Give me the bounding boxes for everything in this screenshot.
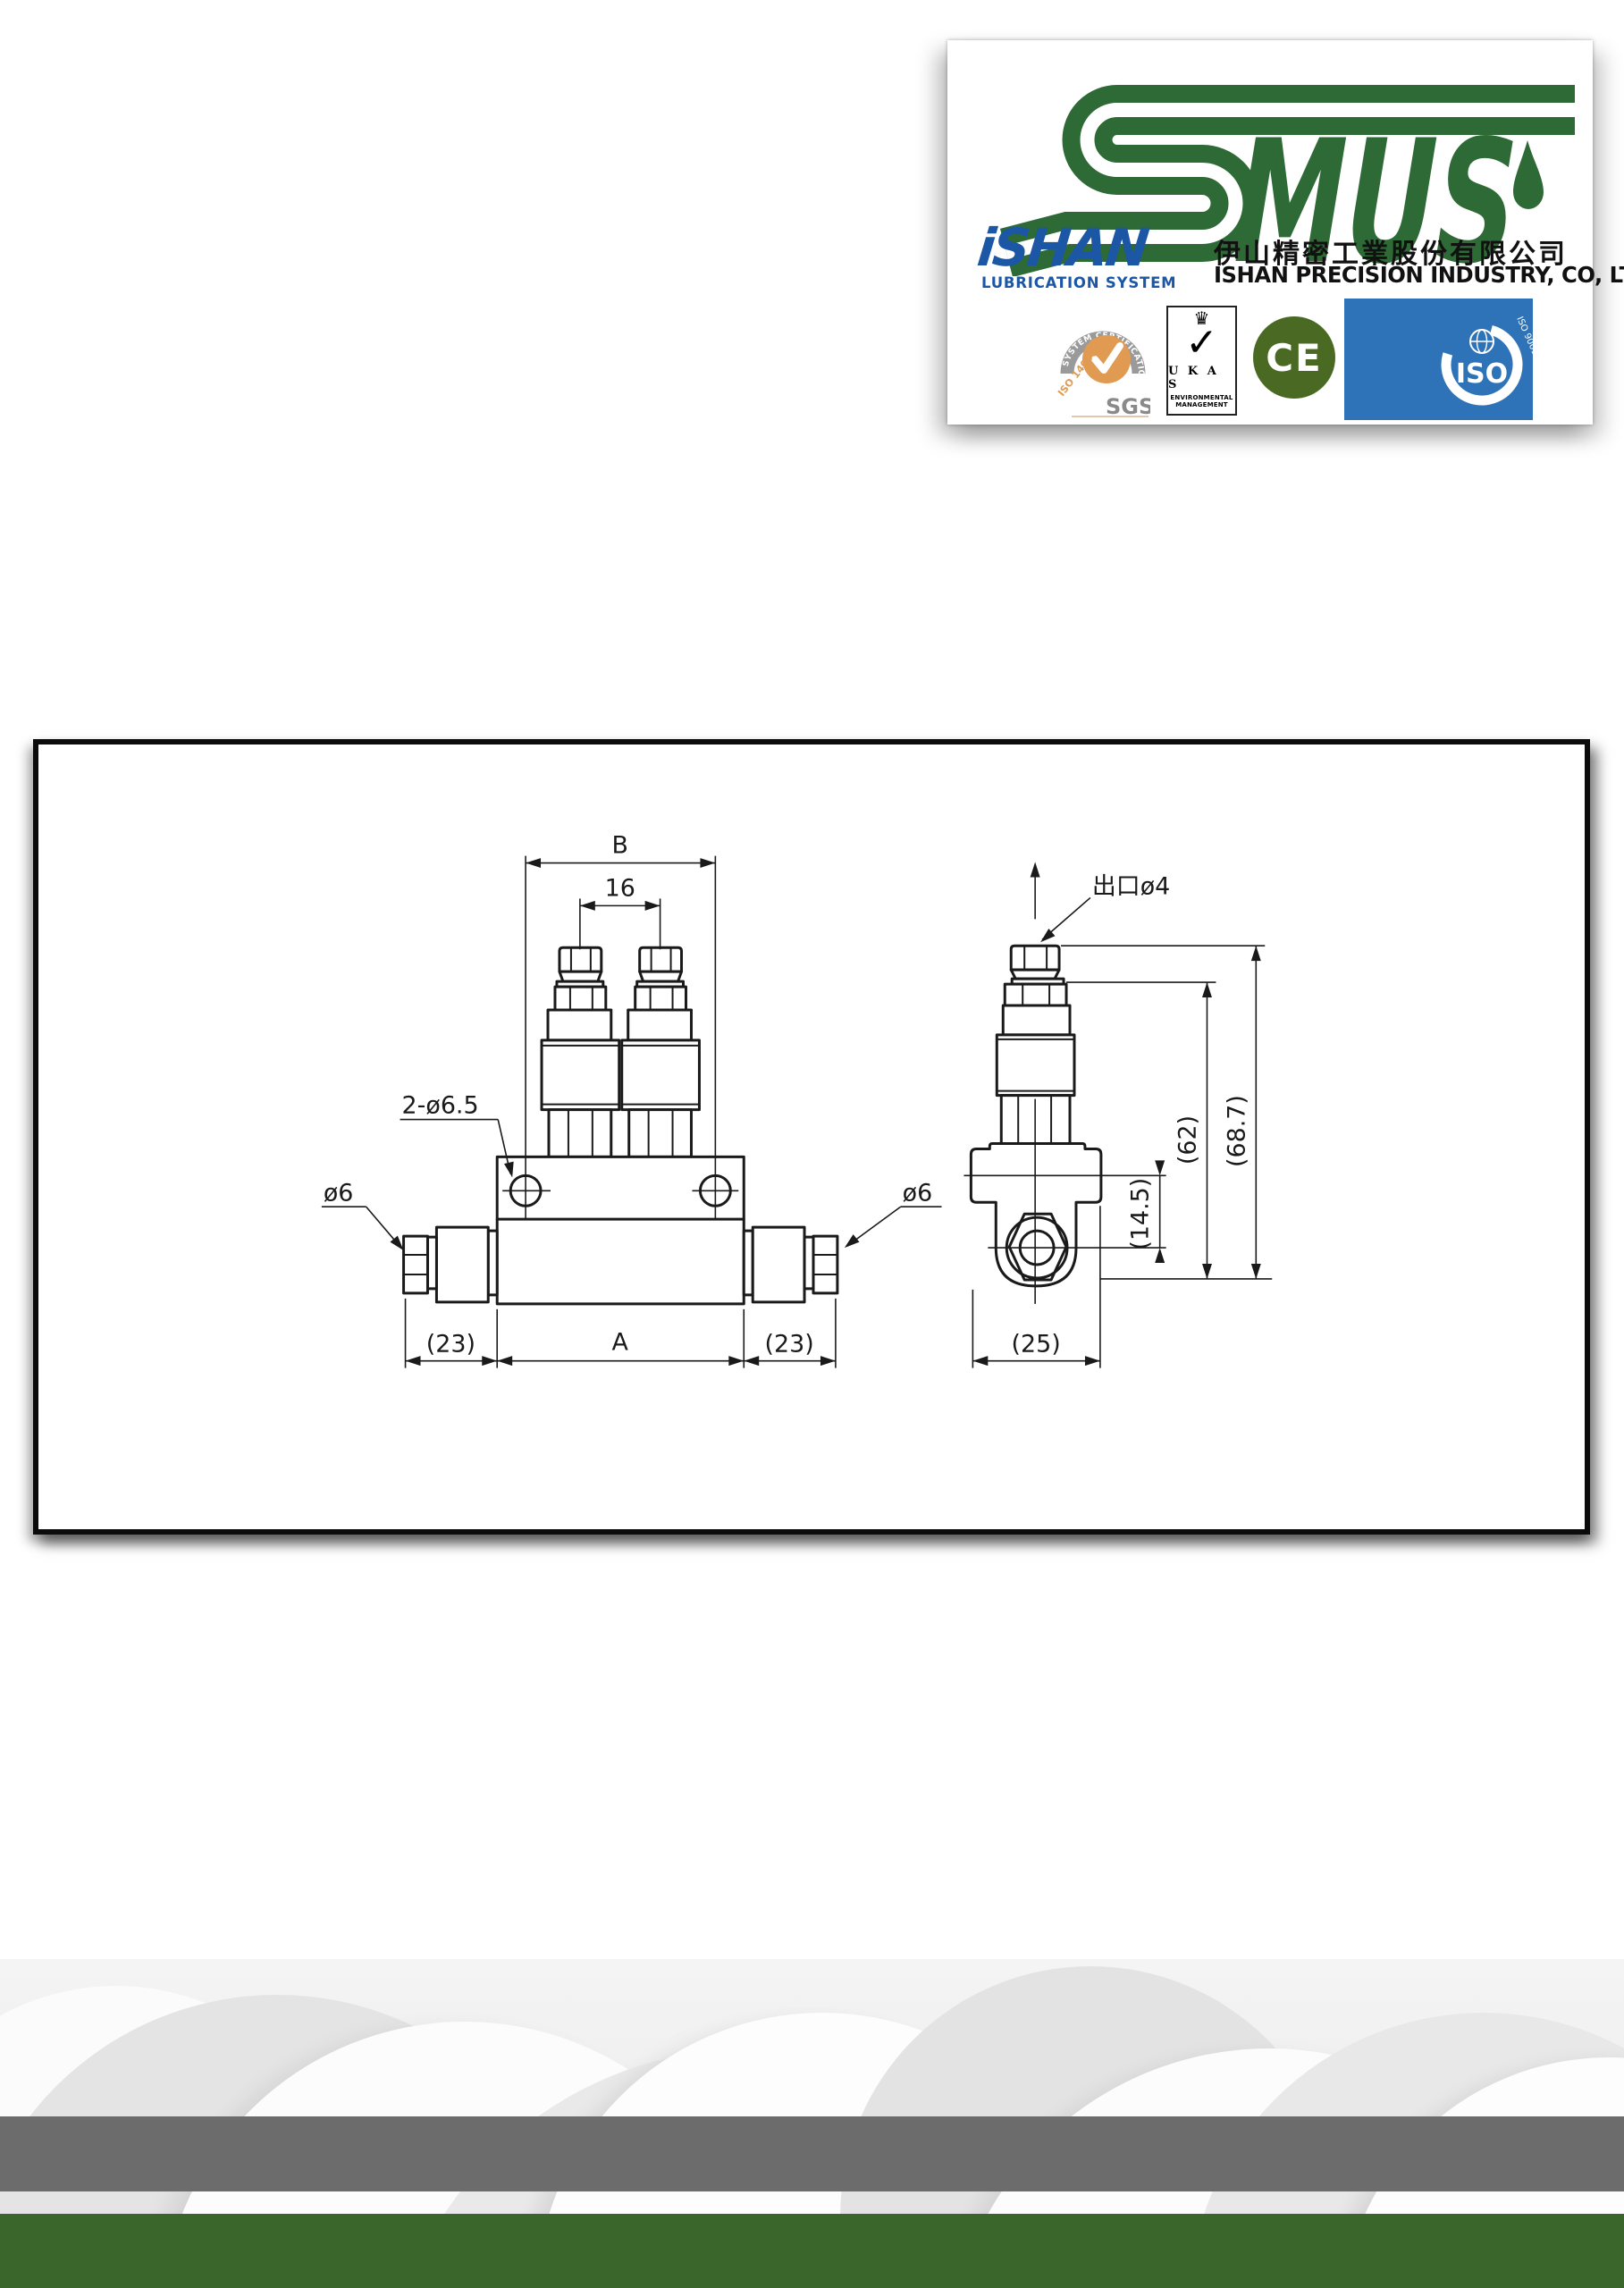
tube-left-label: ø6 (324, 1179, 354, 1207)
page: { "company": { "smus_wordmark": "MUS", "… (0, 0, 1624, 2288)
holes-callout-label: 2-ø6.5 (402, 1092, 479, 1120)
check-icon: ✓ (1185, 324, 1218, 363)
footer-decoration (0, 1959, 1624, 2288)
tube-fitting-left (404, 1227, 498, 1302)
outlet-callout-label: 出口ø4 (1092, 872, 1170, 900)
footer-green-bar (0, 2214, 1624, 2288)
company-name-en: ISHAN PRECISION INDUSTRY, CO, LTD (1214, 262, 1624, 288)
ukas-certification-badge: ♛ ✓ U K A S ENVIRONMENTAL MANAGEMENT (1166, 306, 1237, 416)
technical-drawing-panel: B 16 (23) A (23) 2-ø6.5 ø6 ø6 (33, 739, 1590, 1535)
ishan-logo: iSHAN (974, 217, 1149, 278)
dim-62-label: (62) (1174, 1115, 1202, 1165)
dim-25-label: (25) (1012, 1331, 1061, 1358)
ukas-line1: ENVIRONMENTAL (1170, 394, 1233, 401)
ukas-line2: MANAGEMENT (1175, 401, 1228, 408)
tube-right-label: ø6 (903, 1179, 933, 1207)
dim-145-label: (14.5) (1127, 1178, 1155, 1250)
iso-label: ISO (1456, 358, 1508, 390)
side-view: 出口ø4 (14.5) (62) (68.7) (25) (963, 862, 1272, 1368)
ce-label: CE (1266, 336, 1323, 380)
distributor-drawing: B 16 (23) A (23) 2-ø6.5 ø6 ø6 (38, 744, 1585, 1529)
tube-fitting-right (744, 1227, 837, 1302)
company-logo-block: MUS iSHAN LUBRICATION SYSTEM 伊山精密工業股份有限公… (947, 40, 1593, 425)
dim-687-label: (68.7) (1223, 1095, 1250, 1167)
dim-b-label: B (612, 832, 628, 860)
iso-certification-badge: ISO ISO 9001:2015 (1344, 299, 1533, 420)
sgs-certification-badge: SYSTEM CERTIFICATION ISO 14001 SGS (1056, 306, 1150, 418)
front-view: B 16 (23) A (23) 2-ø6.5 ø6 ø6 (322, 832, 942, 1368)
ukas-label: U K A S (1168, 365, 1235, 391)
dim-23-right-label: (23) (764, 1331, 813, 1358)
manifold-flange (497, 1157, 744, 1219)
sgs-label: SGS (1106, 394, 1150, 418)
manifold-body (497, 1219, 744, 1304)
dim-a-label: A (612, 1329, 629, 1357)
ce-certification-badge: CE (1253, 316, 1335, 399)
footer-gray-bar (0, 2116, 1624, 2191)
dim-16-label: 16 (605, 874, 635, 902)
dim-23-left-label: (23) (426, 1331, 475, 1358)
ishan-tagline: LUBRICATION SYSTEM (981, 274, 1176, 291)
